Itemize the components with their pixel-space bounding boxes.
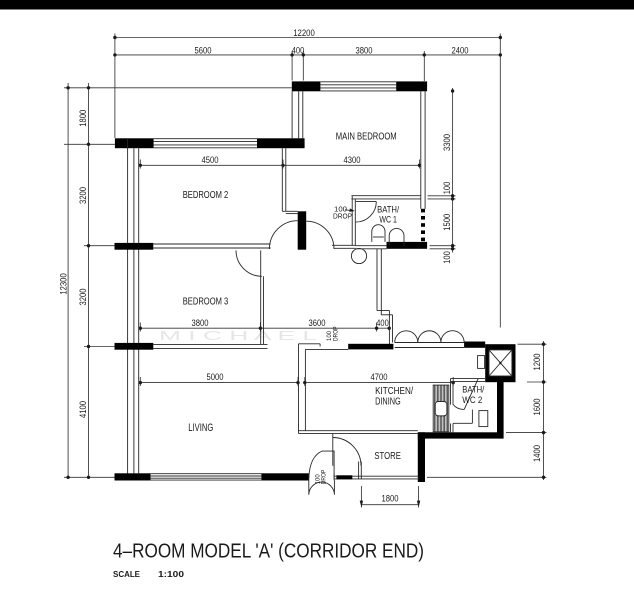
svg-text:DINING: DINING [375,397,401,408]
svg-text:MAIN BEDROOM: MAIN BEDROOM [336,132,397,143]
svg-text:12200: 12200 [293,28,315,38]
svg-text:1600: 1600 [532,398,542,415]
svg-text:400: 400 [292,46,305,56]
svg-text:WC 1: WC 1 [379,214,397,224]
svg-text:100: 100 [442,182,452,195]
svg-text:100: 100 [327,330,333,341]
svg-text:DROP: DROP [333,327,339,342]
svg-text:3600: 3600 [309,318,326,328]
svg-text:4100: 4100 [78,401,88,418]
svg-text:3800: 3800 [356,46,373,56]
svg-text:12300: 12300 [59,273,69,295]
svg-text:2400: 2400 [452,46,469,56]
svg-text:DROP: DROP [333,213,352,220]
svg-text:400: 400 [376,318,389,328]
svg-text:BEDROOM 3: BEDROOM 3 [183,297,229,308]
svg-text:5600: 5600 [195,46,212,56]
svg-text:4300: 4300 [344,155,361,165]
svg-text:1500: 1500 [442,214,452,231]
svg-text:BATH/: BATH/ [462,385,484,395]
svg-text:100: 100 [315,474,321,485]
svg-text:1400: 1400 [532,445,542,462]
svg-text:100: 100 [442,251,452,264]
svg-text:3200: 3200 [78,288,88,305]
svg-text:5000: 5000 [207,372,224,382]
svg-text:M I C H A E L: M I C H A E L [159,328,317,343]
svg-text:3300: 3300 [442,134,452,151]
svg-text:DROP: DROP [322,470,328,485]
svg-text:4–ROOM MODEL 'A' (CORRIDOR END: 4–ROOM MODEL 'A' (CORRIDOR END) [113,541,424,563]
svg-text:4500: 4500 [202,155,219,165]
svg-text:1800: 1800 [78,110,88,127]
svg-text:BATH/: BATH/ [377,205,399,215]
svg-text:STORE: STORE [374,451,401,462]
svg-text:LIVING: LIVING [188,422,213,434]
svg-text:1:100: 1:100 [158,569,184,579]
svg-text:4700: 4700 [371,372,388,382]
svg-text:3800: 3800 [192,318,209,328]
svg-text:3200: 3200 [78,187,88,204]
svg-text:WC 2: WC 2 [462,395,482,405]
svg-text:KITCHEN/: KITCHEN/ [375,386,413,397]
svg-text:1200: 1200 [532,353,542,370]
svg-text:SCALE: SCALE [113,569,140,579]
svg-text:1800: 1800 [382,494,399,504]
svg-text:BEDROOM 2: BEDROOM 2 [183,190,229,201]
